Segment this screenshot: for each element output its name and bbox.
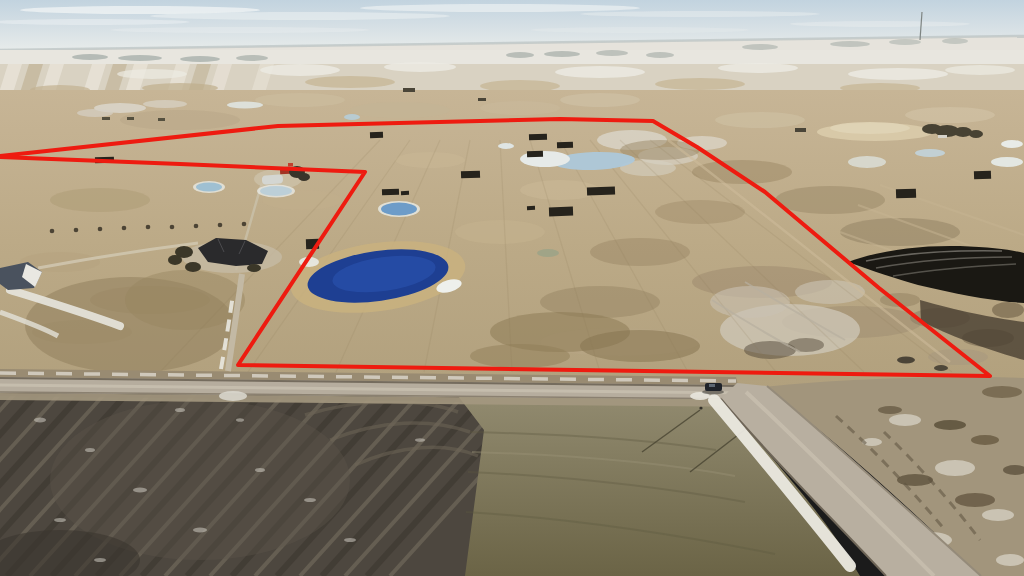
windbreak-shrub	[170, 225, 175, 230]
cattle-shelter	[382, 189, 399, 196]
vehicle-layer	[702, 383, 724, 395]
vehicle-windshield-glint	[709, 384, 715, 387]
red-truck	[288, 163, 293, 167]
barnyard-tree	[298, 173, 310, 181]
distant-farm-building	[102, 117, 110, 120]
yard-tree	[247, 264, 261, 272]
farm-building-white	[938, 135, 947, 138]
cattle-shelter	[527, 151, 543, 158]
pond-right-3	[1001, 140, 1023, 148]
cattle-shelter	[370, 132, 383, 138]
distant-farm-building	[158, 118, 165, 121]
pond-right-1	[915, 149, 945, 157]
slough-dark-1	[897, 357, 915, 364]
windbreak-shrub	[122, 226, 127, 231]
prairie-field	[0, 90, 1024, 392]
cattle-shelter	[529, 134, 547, 141]
distant-farm-building	[478, 98, 486, 101]
frozen-pond-northwest	[227, 102, 263, 109]
cattle-shelter	[461, 171, 480, 179]
tree-cluster	[954, 127, 972, 137]
cattle-shelter	[974, 171, 991, 180]
cattle-shelter	[896, 189, 916, 199]
windbreak-shrub	[194, 224, 199, 229]
distant-farm-building	[127, 117, 134, 120]
cattle-shelter	[527, 206, 535, 210]
quonset-shed	[262, 174, 284, 184]
pond-tiny-north	[344, 114, 360, 120]
cattle-shelter	[401, 191, 409, 195]
cattle-shelter	[587, 187, 615, 196]
yard-tree	[168, 255, 182, 265]
distant-farm-building	[403, 88, 415, 92]
cattle-shelter	[549, 207, 573, 217]
cattle-shelter	[557, 142, 573, 149]
salt-flat	[848, 156, 886, 168]
pond-west	[196, 183, 222, 192]
yard-tree	[185, 262, 201, 272]
aerial-photo	[0, 0, 1024, 576]
windbreak-shrub	[50, 229, 55, 234]
windbreak-shrub	[218, 223, 223, 228]
screenshot-root	[0, 0, 1024, 576]
slough-green	[537, 249, 559, 257]
windbreak-shrub	[74, 228, 79, 233]
tree-cluster	[969, 130, 983, 138]
slough-dark-2	[934, 365, 948, 371]
snow-patch-culvert	[219, 391, 247, 401]
windbreak-shrub	[242, 222, 247, 227]
distant-farm-building	[795, 128, 806, 132]
pond-right-2	[991, 157, 1023, 167]
pond-small-white	[498, 143, 514, 149]
barnyard-pond	[260, 186, 292, 196]
pond-blue-small	[381, 203, 417, 216]
windbreak-shrub	[98, 227, 103, 232]
windbreak-shrub	[146, 225, 151, 230]
